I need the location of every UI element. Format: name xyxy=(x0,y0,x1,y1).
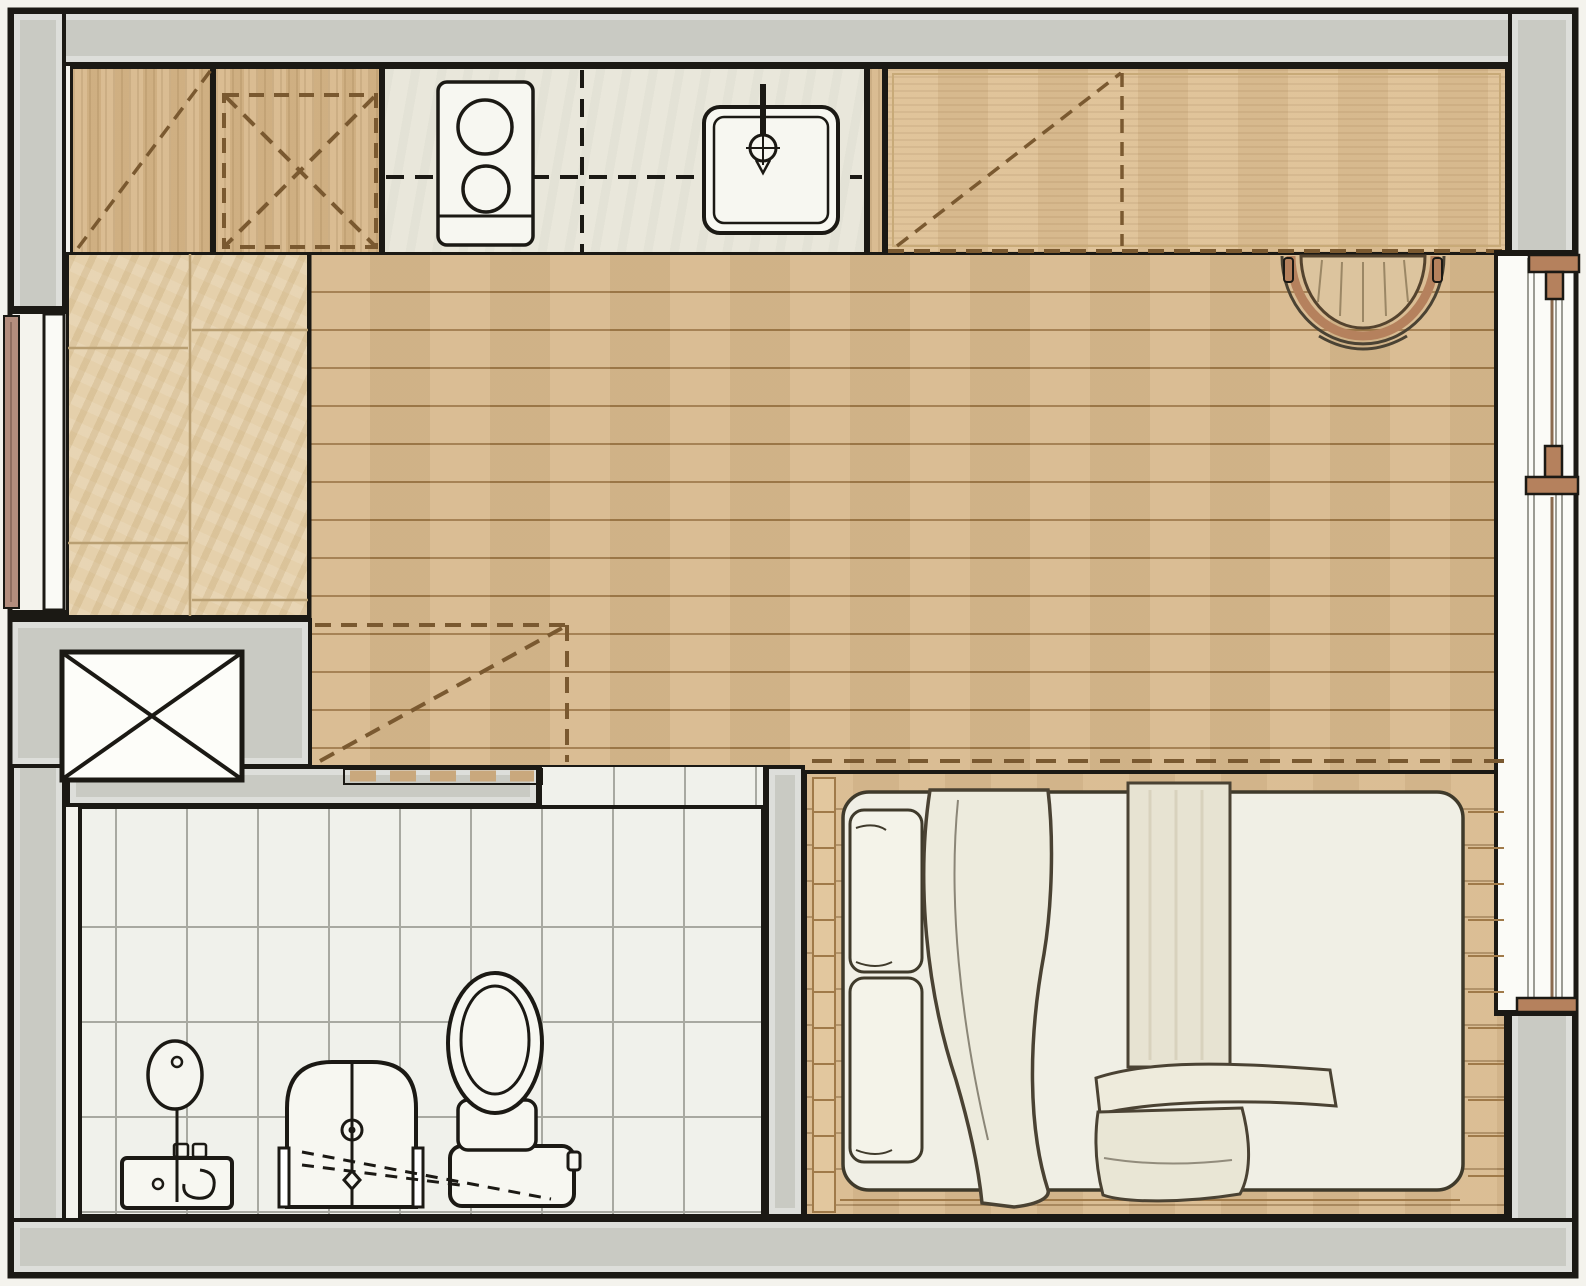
bathroom-wall-right xyxy=(765,765,805,1218)
wall-bottom xyxy=(10,1218,1576,1276)
kitchen-cabinet-tall xyxy=(213,66,382,255)
bed-platform xyxy=(803,770,1508,1218)
bathroom-wall-top xyxy=(66,765,540,807)
balcony-window-frame xyxy=(1494,250,1576,1016)
wall-top xyxy=(10,10,1576,66)
entry-travertine-floor xyxy=(66,252,310,618)
service-alcove xyxy=(8,618,312,768)
living-wood-floor xyxy=(310,255,1508,772)
wardrobe-side-panel xyxy=(867,66,885,255)
bathroom-door-threshold xyxy=(540,765,765,807)
kitchen-cabinet-left xyxy=(70,66,213,255)
bathroom-floor xyxy=(78,805,765,1218)
wardrobe xyxy=(885,66,1508,255)
kitchen-counter xyxy=(382,66,867,255)
entry-door-opening xyxy=(8,312,66,610)
floor-plan xyxy=(0,0,1586,1286)
